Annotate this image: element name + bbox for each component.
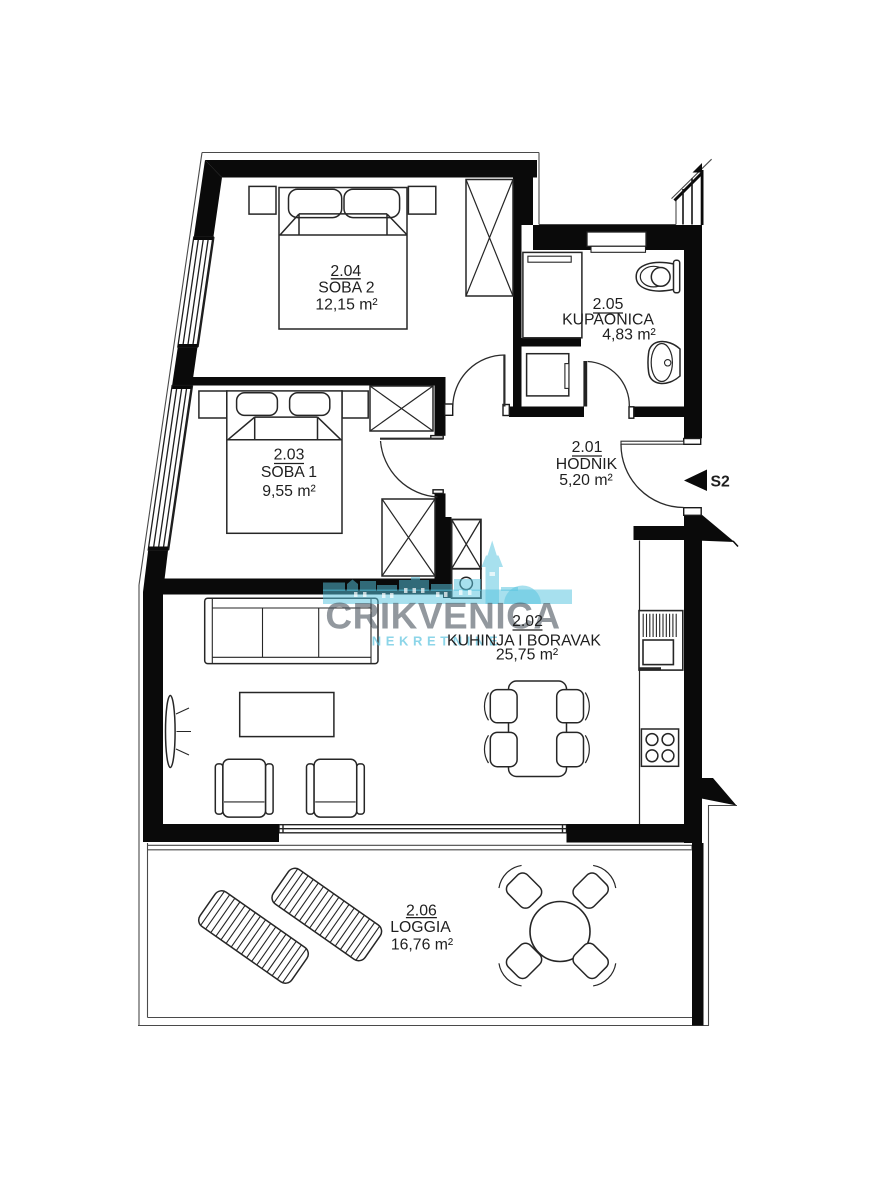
svg-text:LOGGIA: LOGGIA <box>390 919 451 936</box>
svg-text:HODNIK: HODNIK <box>556 456 618 473</box>
svg-text:2.03: 2.03 <box>274 447 305 464</box>
svg-text:16,76 m²: 16,76 m² <box>391 937 453 954</box>
svg-text:SOBA 2: SOBA 2 <box>318 280 374 297</box>
svg-text:2.04: 2.04 <box>330 263 361 280</box>
svg-text:S2: S2 <box>711 474 731 491</box>
svg-text:2.05: 2.05 <box>593 296 624 313</box>
svg-text:SOBA 1: SOBA 1 <box>261 464 317 481</box>
svg-text:5,20 m²: 5,20 m² <box>559 472 613 489</box>
svg-text:25,75 m²: 25,75 m² <box>496 647 558 664</box>
svg-text:12,15 m²: 12,15 m² <box>315 297 377 314</box>
svg-text:4,83 m²: 4,83 m² <box>602 327 656 344</box>
svg-text:2.02: 2.02 <box>512 613 543 630</box>
svg-text:9,55 m²: 9,55 m² <box>262 483 316 500</box>
svg-text:2.01: 2.01 <box>572 439 603 456</box>
